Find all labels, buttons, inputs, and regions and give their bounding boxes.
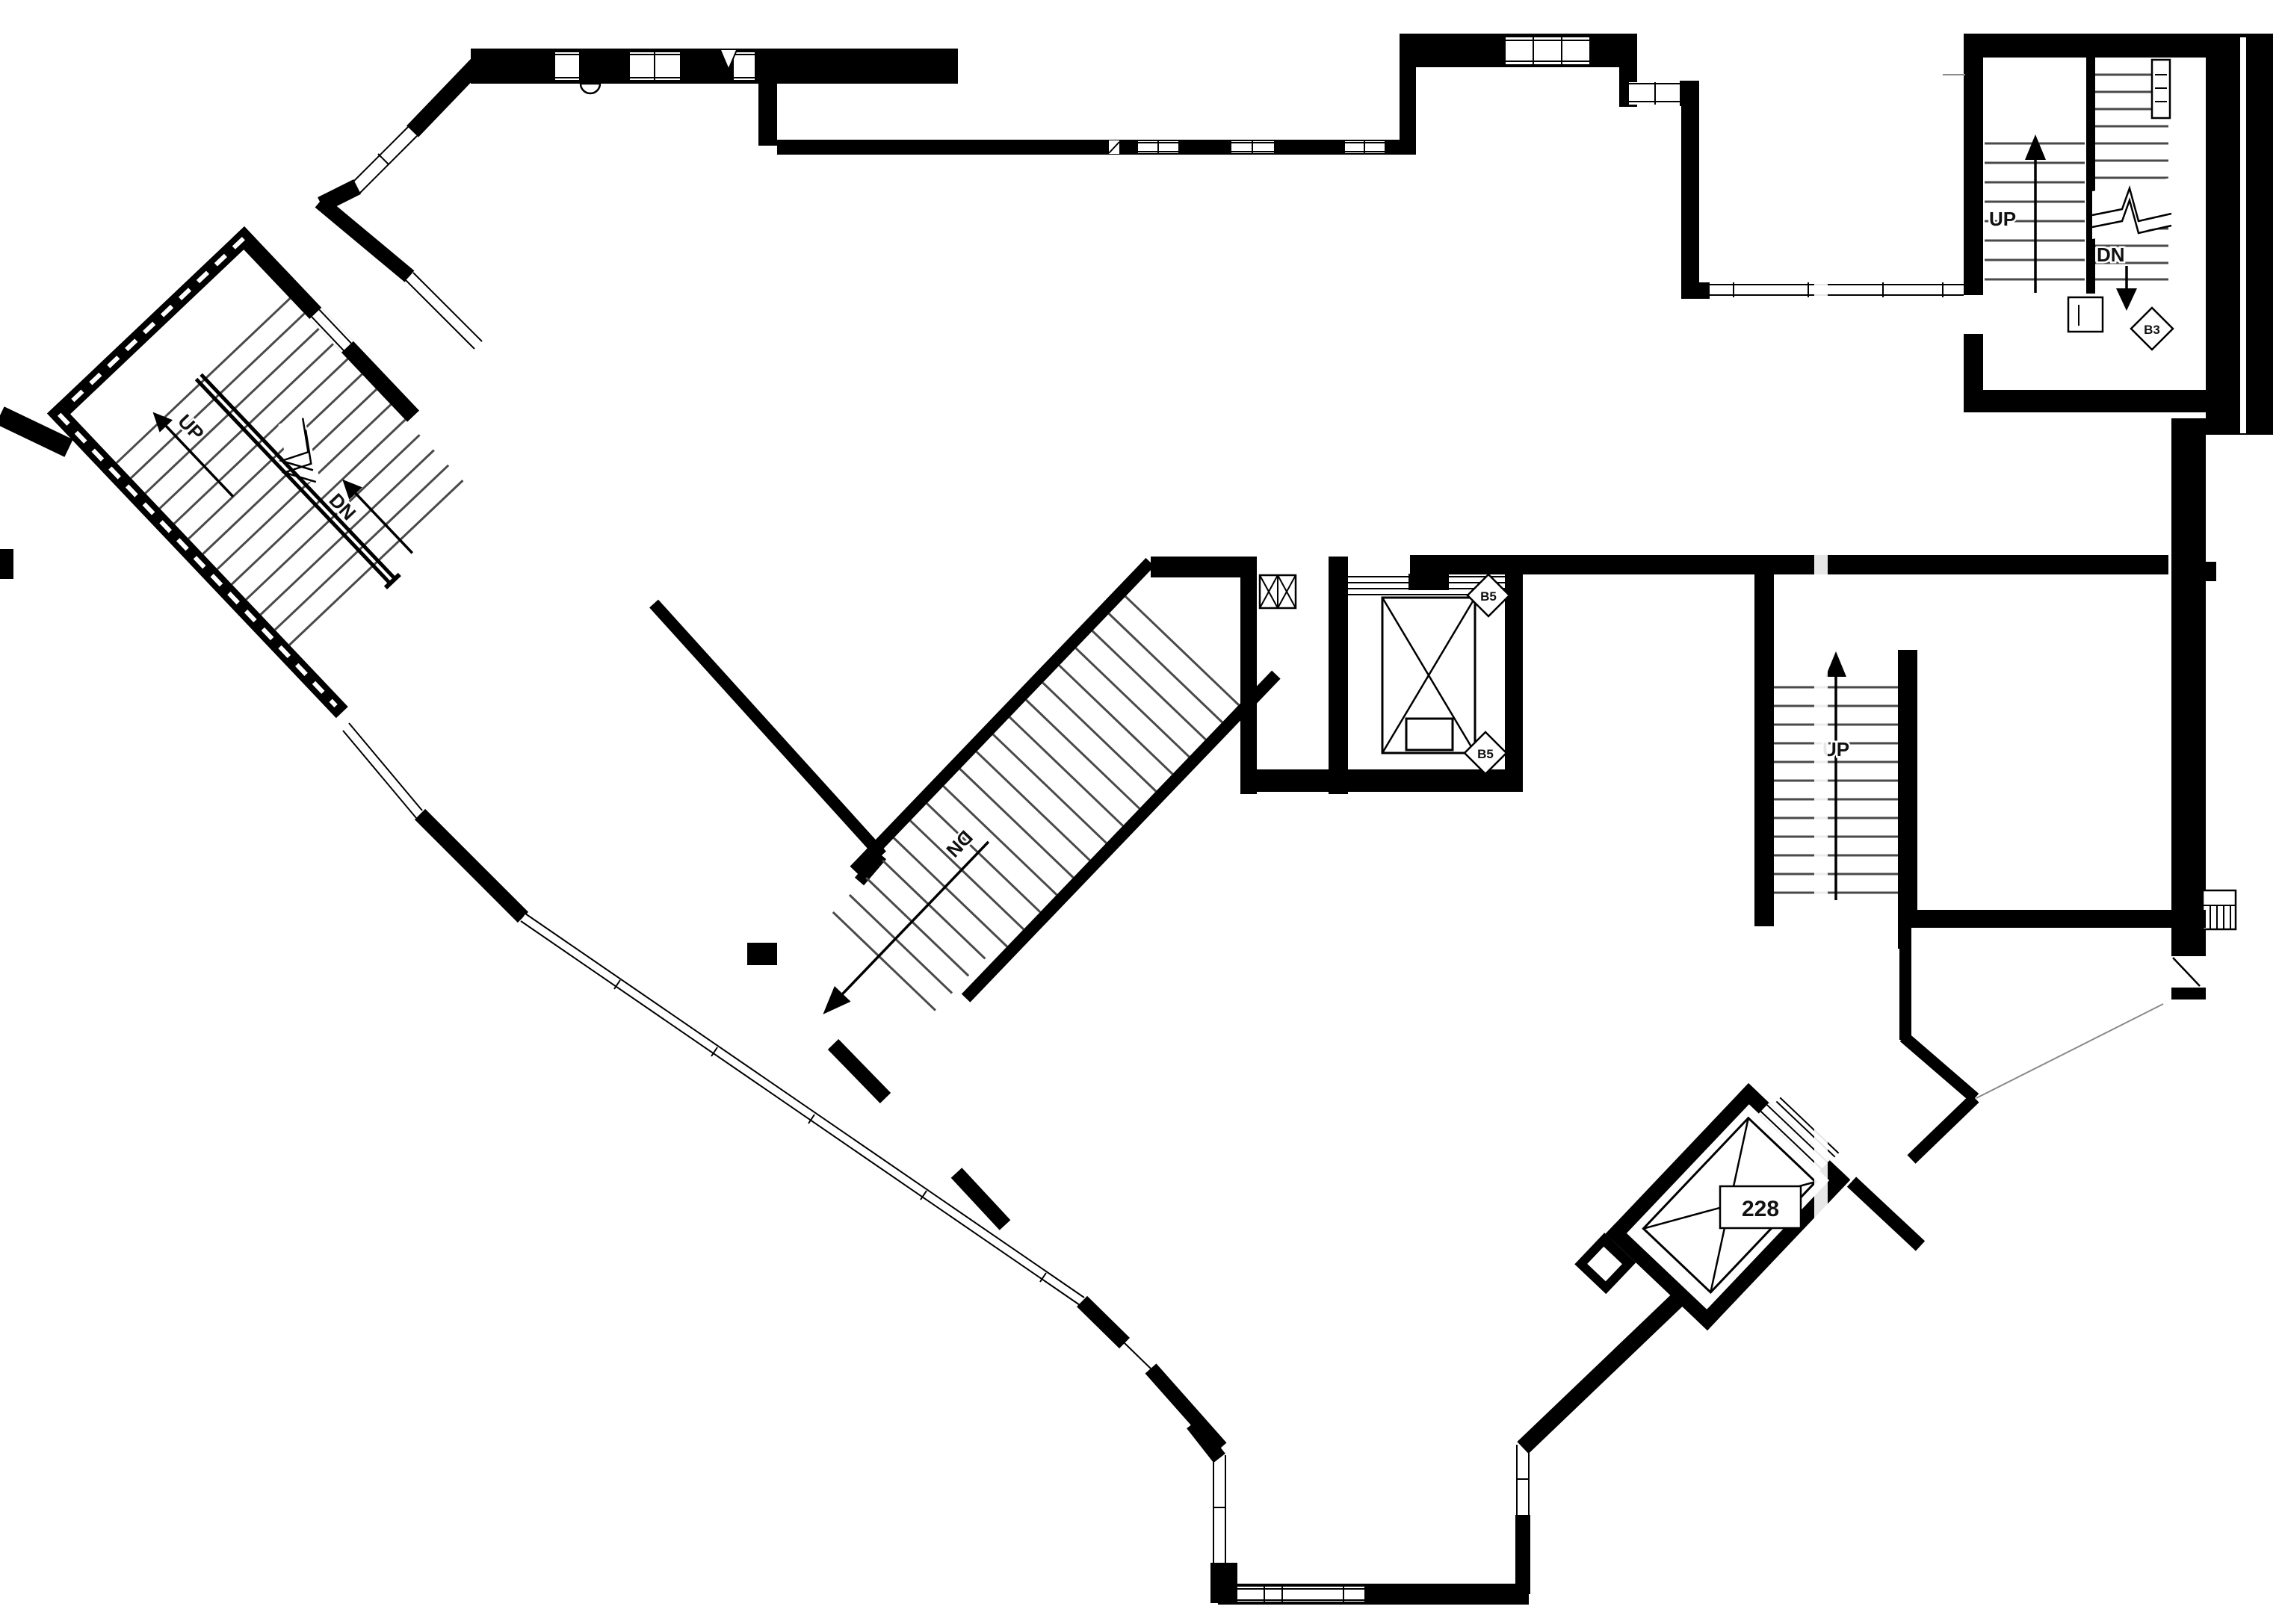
up-arrow-head: [2025, 134, 2046, 160]
wall: [471, 49, 958, 84]
stairwell-wall: [2206, 34, 2273, 435]
wall-pier: [747, 943, 777, 965]
lobby-wall: [1410, 555, 2168, 574]
window-band: [1629, 82, 1681, 105]
right-stair: UP: [1754, 574, 1917, 949]
stair-wall: [962, 671, 1281, 1002]
stair-wall: [1898, 650, 1917, 916]
tag-box: [2152, 60, 2170, 118]
lobby-wall: [1151, 557, 1242, 577]
stairwell-wall: [1964, 34, 1983, 412]
b5-lower-label: B5: [1477, 747, 1494, 761]
stair-wall: [850, 558, 1154, 875]
up-label: UP: [1989, 208, 2016, 230]
landing-box: [2068, 297, 2103, 332]
louver-box: [2203, 890, 2236, 929]
stair-wall: [1754, 574, 1774, 926]
stair-divider-wall: [2086, 58, 2095, 294]
southwest-glazed-wall: [343, 723, 1221, 1448]
shaft-wall: [1505, 572, 1523, 771]
wall: [777, 140, 1410, 155]
room-228-tag: 228: [1720, 1186, 1801, 1228]
b5-upper-label: B5: [1480, 589, 1497, 604]
bottom-bay: [1193, 1300, 1677, 1605]
stair-treads: [828, 596, 1239, 1015]
b3-tag: B3: [2131, 308, 2173, 350]
shaft-wall: [1329, 557, 1348, 794]
room-228-label: 228: [1742, 1197, 1779, 1221]
shaft-wall: [1240, 557, 1257, 794]
window-band: [1517, 1445, 1529, 1515]
wall: [1515, 1515, 1530, 1594]
wall: [1193, 1424, 1219, 1458]
east-exterior-walls: [1899, 418, 2236, 1159]
stairwell-wall: [1964, 390, 2206, 412]
wall-jog: [758, 49, 777, 146]
stair-break-line: [2092, 178, 2171, 239]
wall-seam: [2240, 37, 2246, 433]
window-band: [1237, 1587, 1364, 1602]
northwest-diagonal-walls: [320, 57, 484, 349]
down-arrow-head: [2116, 288, 2137, 311]
window-band: [1506, 37, 1589, 64]
wall: [1899, 926, 1911, 1040]
column-bump: [581, 84, 600, 93]
left-stairwell: UP DN: [47, 226, 534, 718]
vent-box-icon: [1260, 575, 1296, 608]
elevator-cab-icon: [1382, 598, 1475, 753]
shaft-wall: [1240, 769, 1523, 792]
down-label: DN: [2097, 244, 2125, 266]
wall: [1852, 1182, 1920, 1246]
top-right-stairwell: UP DN B3: [1943, 34, 2273, 435]
wall: [1523, 1300, 1677, 1448]
wall-stub: [2204, 562, 2216, 581]
elevator-core: B5 B5: [1151, 555, 2168, 794]
window-band: [1213, 1455, 1225, 1563]
stair-door-opening: [1964, 295, 1983, 334]
b3-label: B3: [2144, 323, 2160, 337]
floor-plan-page: UP DN: [0, 0, 2279, 1624]
north-exterior-walls: [471, 34, 1965, 299]
floor-plan-drawing: UP DN: [0, 0, 2279, 1624]
scan-seam-artifact: [1814, 0, 1828, 1624]
wall: [1681, 81, 1699, 299]
wall-stub: [0, 549, 13, 579]
interior-diagonal-wall: [654, 604, 882, 881]
up-arrow-head: [1825, 651, 1846, 677]
wall: [1907, 910, 2206, 928]
